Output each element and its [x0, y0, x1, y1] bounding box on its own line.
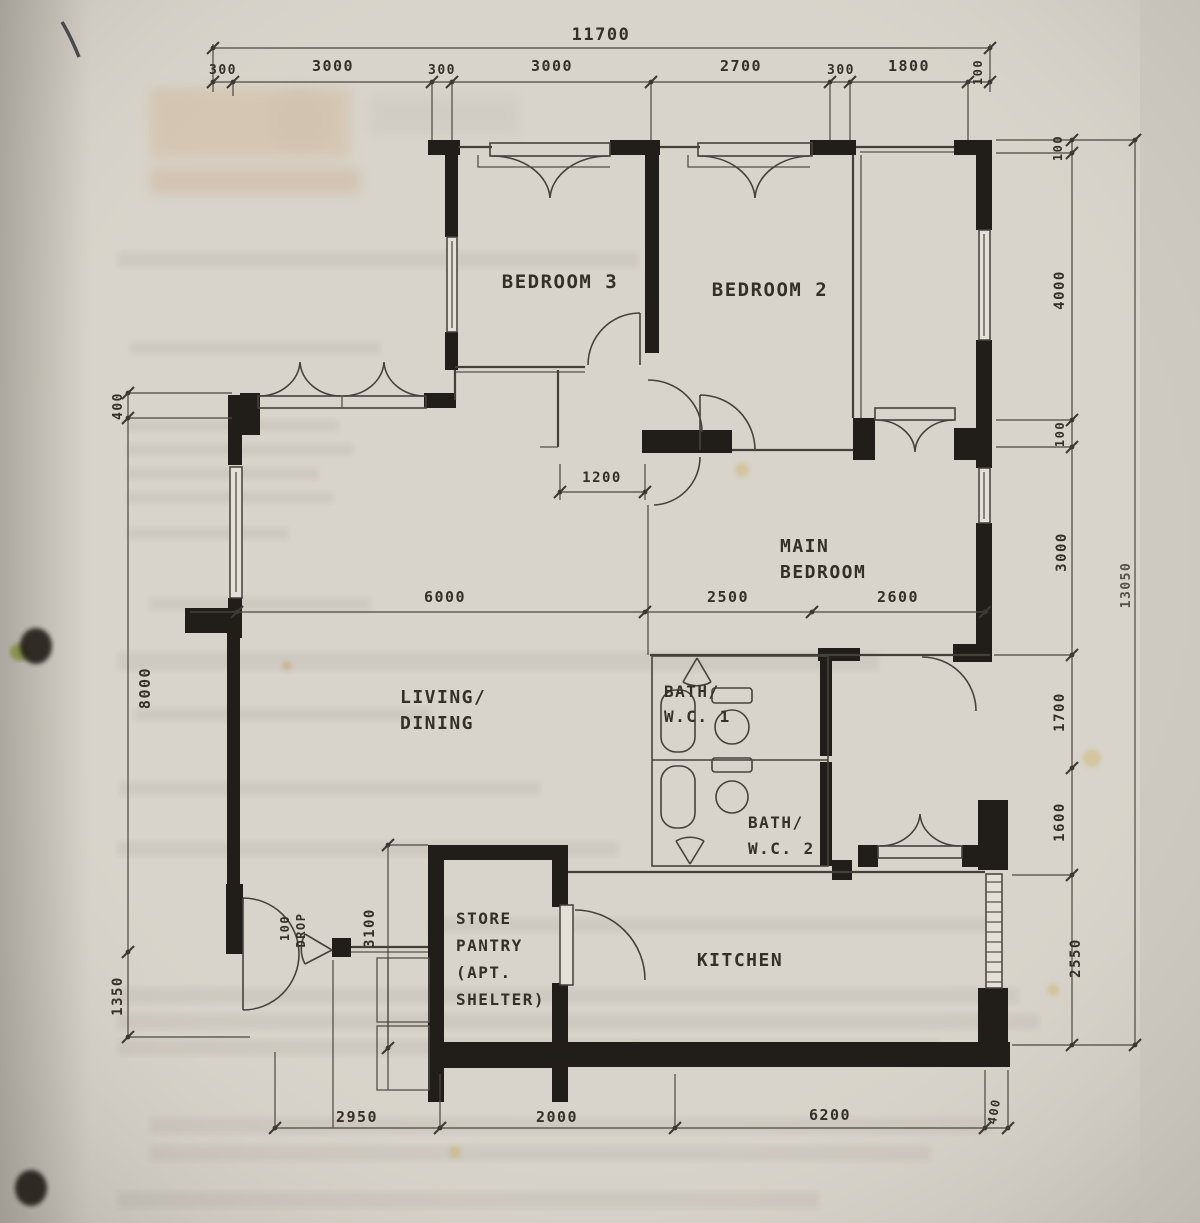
dim-right-6: 2550	[1068, 938, 1084, 978]
dim-store-height: 3100	[362, 908, 378, 948]
dim-top-1: 3000	[312, 57, 354, 75]
room-label-bath2-2: W.C. 2	[748, 839, 815, 858]
room-label-bedroom3: BEDROOM 3	[502, 271, 618, 293]
room-label-bedroom2: BEDROOM 2	[712, 279, 828, 301]
dim-left-2: 1350	[110, 976, 126, 1016]
room-label-kitchen: KITCHEN	[697, 950, 783, 971]
room-label-living-1: LIVING/	[400, 687, 486, 708]
dim-top-total: 11700	[572, 25, 631, 45]
dim-right-4: 1700	[1052, 692, 1068, 732]
dim-top-2: 300	[428, 63, 456, 78]
floor-plan-canvas: 11700 300 3000 300 3000 2700 300 1800 10…	[0, 0, 1200, 1223]
room-label-bath1-1: BATH/	[664, 682, 720, 701]
room-label-bath2-1: BATH/	[748, 813, 804, 832]
room-label-living-2: DINING	[400, 713, 474, 734]
room-label-main-bedroom-1: MAIN	[780, 536, 829, 557]
dim-left-1: 8000	[136, 667, 154, 709]
dim-top-7: 100	[971, 59, 985, 85]
room-label-store-2: PANTRY	[456, 936, 523, 955]
room-label-store-1: STORE	[456, 909, 512, 928]
dim-right-2: 100	[1053, 421, 1067, 447]
louvre-window-icon	[986, 874, 1002, 988]
dim-top-0: 300	[209, 63, 237, 78]
dim-bottom-2: 6200	[809, 1106, 851, 1124]
dim-right-0: 100	[1051, 135, 1065, 161]
entrance-drop-label: DROP	[294, 913, 308, 948]
dim-left-0: 400	[111, 392, 126, 420]
dim-right-5: 1600	[1052, 802, 1068, 842]
room-label-store-4: SHELTER)	[456, 990, 545, 1009]
room-label-bath1-2: W.C. 1	[664, 707, 731, 726]
dim-right-total: 13050	[1119, 562, 1134, 609]
dim-hall-width: 2500	[707, 588, 749, 606]
entrance-drop-value: 100	[278, 915, 292, 941]
dim-door-opening: 1200	[582, 470, 622, 486]
dim-top-5: 300	[827, 63, 855, 78]
dim-main-bedroom-width: 2600	[877, 588, 919, 606]
dim-living-width: 6000	[424, 588, 466, 606]
dim-bottom-1: 2000	[536, 1108, 578, 1126]
dim-right-1: 4000	[1052, 270, 1068, 310]
dim-top-6: 1800	[888, 57, 930, 75]
dim-right-3: 3000	[1054, 532, 1070, 572]
dim-top-3: 3000	[531, 57, 573, 75]
room-label-store-3: (APT.	[456, 963, 512, 982]
room-label-main-bedroom-2: BEDROOM	[780, 562, 866, 583]
dim-bottom-0: 2950	[336, 1108, 378, 1126]
scanned-floor-plan-page: 11700 300 3000 300 3000 2700 300 1800 10…	[0, 0, 1200, 1223]
dim-top-4: 2700	[720, 57, 762, 75]
